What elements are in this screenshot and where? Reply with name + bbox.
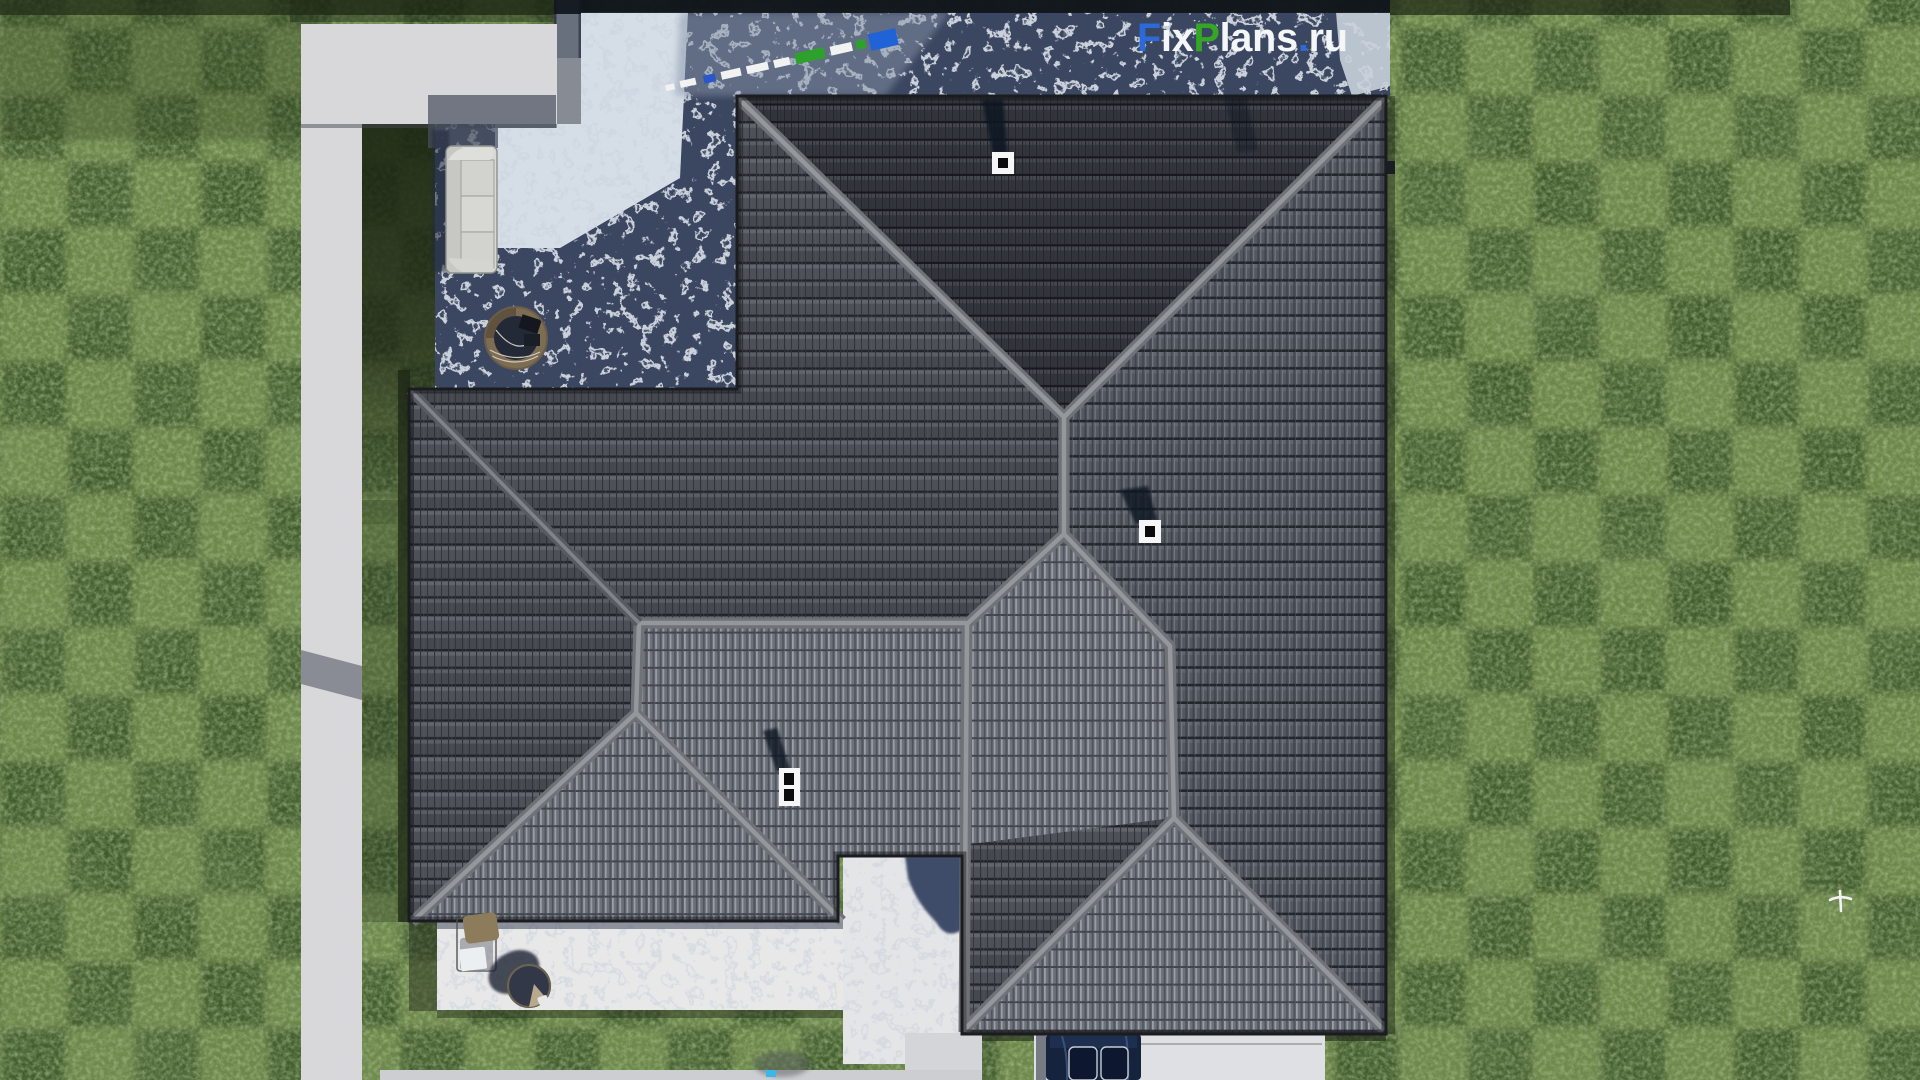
svg-text:FixPlans.ru: FixPlans.ru [1137,16,1348,60]
